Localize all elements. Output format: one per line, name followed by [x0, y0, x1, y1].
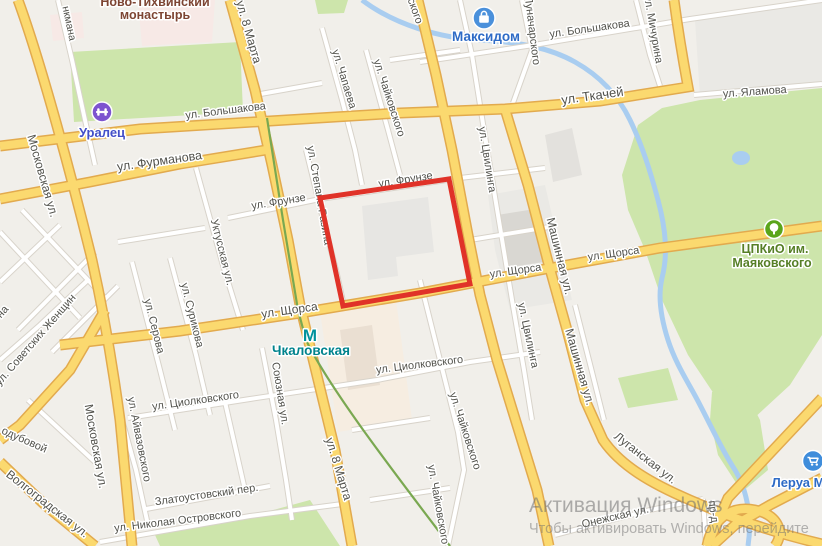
cpkio-mayakovskogo-label[interactable]: Маяковского	[732, 256, 812, 270]
cpkio-mayakovskogo-label[interactable]: ЦПКиО им.	[741, 242, 808, 256]
map-canvas[interactable]: нкманаул. 8 Мартаул. Большаковаул. Больш…	[0, 0, 822, 546]
shopping-cart-icon[interactable]	[803, 451, 822, 472]
map-viewport[interactable]: нкманаул. 8 Мартаул. Большаковаул. Больш…	[0, 0, 822, 546]
chkalovskaya-label[interactable]: Чкаловская	[272, 343, 350, 358]
lerua-label[interactable]: Леруа М	[772, 475, 822, 490]
maksidom-label[interactable]: Максидом	[452, 29, 520, 44]
monastery-label: монастырь	[120, 8, 191, 22]
uralets-label[interactable]: Уралец	[79, 125, 125, 140]
